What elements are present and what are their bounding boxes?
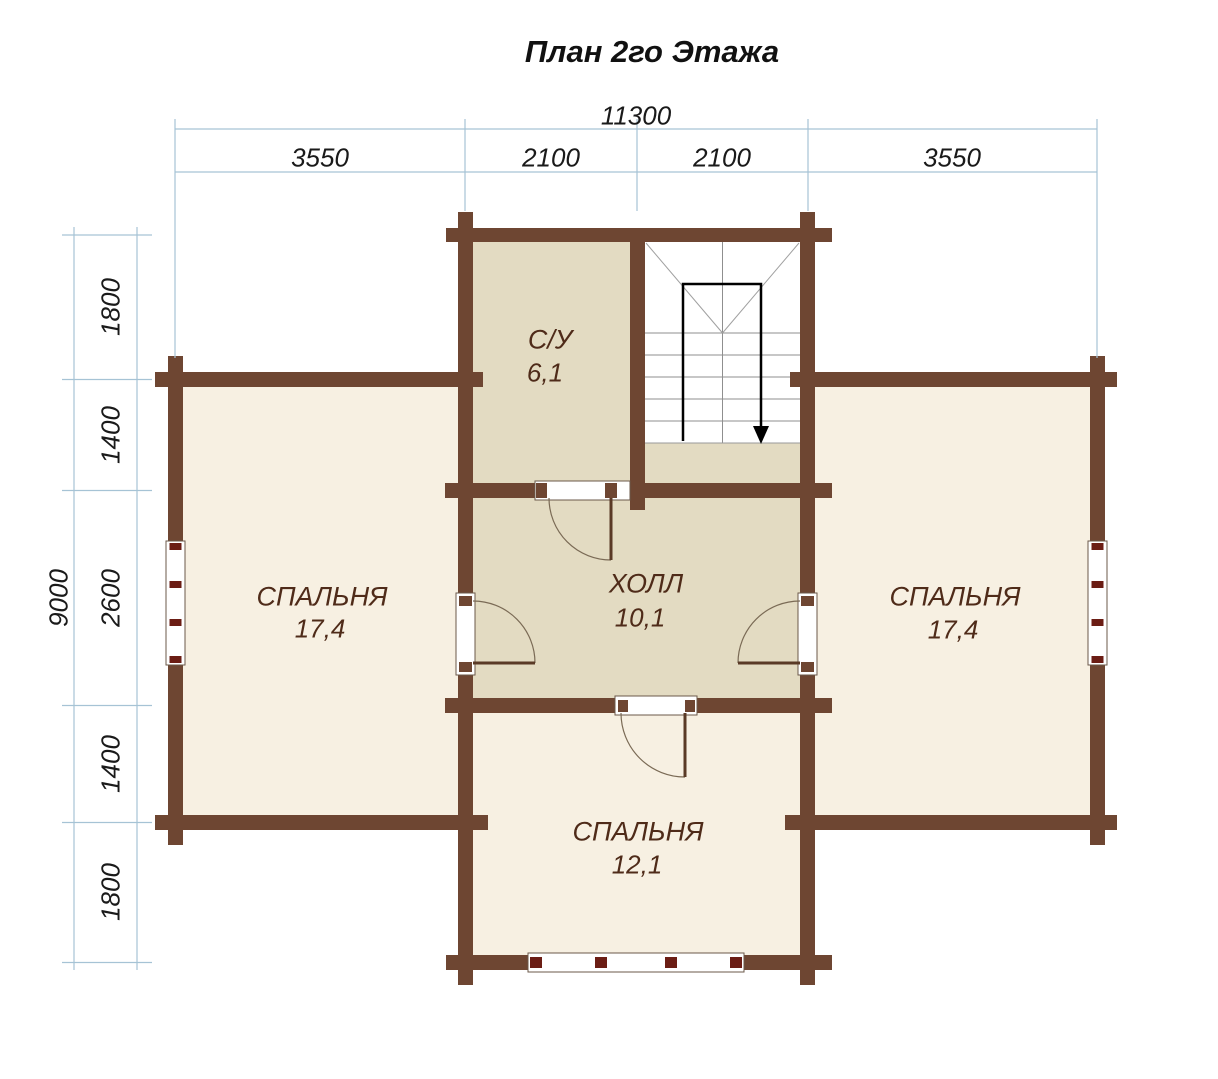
floor-plan-canvas: План 2го Этажа 11300 3550 2100 2100 3550… — [0, 0, 1218, 1079]
wall-left-outer-b — [168, 663, 183, 845]
room-area-bathroom: 6,1 — [527, 358, 563, 389]
wall-right-outer-b — [1090, 663, 1105, 845]
window-right — [1088, 541, 1107, 665]
dim-left-segment-4: 1400 — [96, 735, 127, 793]
room-label-bathroom: С/У — [528, 325, 572, 356]
dim-top-segment-4: 3550 — [923, 143, 981, 174]
window-bottom — [528, 953, 744, 972]
wall-bottom-outer-b — [742, 955, 832, 970]
floor-plan-drawing — [0, 0, 1218, 1079]
wall-left-wing-bottom — [155, 815, 488, 830]
room-area-bedroom-left: 17,4 — [295, 614, 346, 645]
dim-top-segment-2: 2100 — [522, 143, 580, 174]
room-area-bedroom-right: 17,4 — [928, 615, 979, 646]
wall-center-left-b — [458, 673, 473, 985]
dim-left-segment-5: 1800 — [96, 863, 127, 921]
dim-left-segment-2: 1400 — [96, 406, 127, 464]
wall-right-wing-bottom — [785, 815, 1117, 830]
wall-right-outer-a — [1090, 356, 1105, 543]
room-area-hall: 10,1 — [615, 603, 666, 634]
page-title: План 2го Этажа — [525, 34, 779, 70]
wall-left-outer-a — [168, 356, 183, 543]
room-label-bedroom-right: СПАЛЬНЯ — [889, 582, 1020, 613]
room-area-bedroom-bottom: 12,1 — [612, 850, 663, 881]
dim-top-overall: 11300 — [601, 101, 671, 132]
room-label-hall: ХОЛЛ — [609, 569, 683, 600]
room-label-bedroom-left: СПАЛЬНЯ — [256, 582, 387, 613]
dim-top-segment-3: 2100 — [693, 143, 751, 174]
wall-center-right-a — [800, 212, 815, 595]
dim-left-overall: 9000 — [44, 569, 75, 627]
wall-left-wing-top — [155, 372, 483, 387]
wall-right-wing-top — [790, 372, 1117, 387]
wall-stair-divider — [630, 228, 645, 510]
window-left — [166, 541, 185, 665]
dim-left-segment-1: 1800 — [96, 278, 127, 336]
room-label-bedroom-bottom: СПАЛЬНЯ — [572, 817, 703, 848]
dim-top-segment-1: 3550 — [291, 143, 349, 174]
dim-left-segment-3: 2600 — [96, 569, 127, 627]
wall-center-left-a — [458, 212, 473, 595]
wall-center-right-b — [800, 673, 815, 985]
